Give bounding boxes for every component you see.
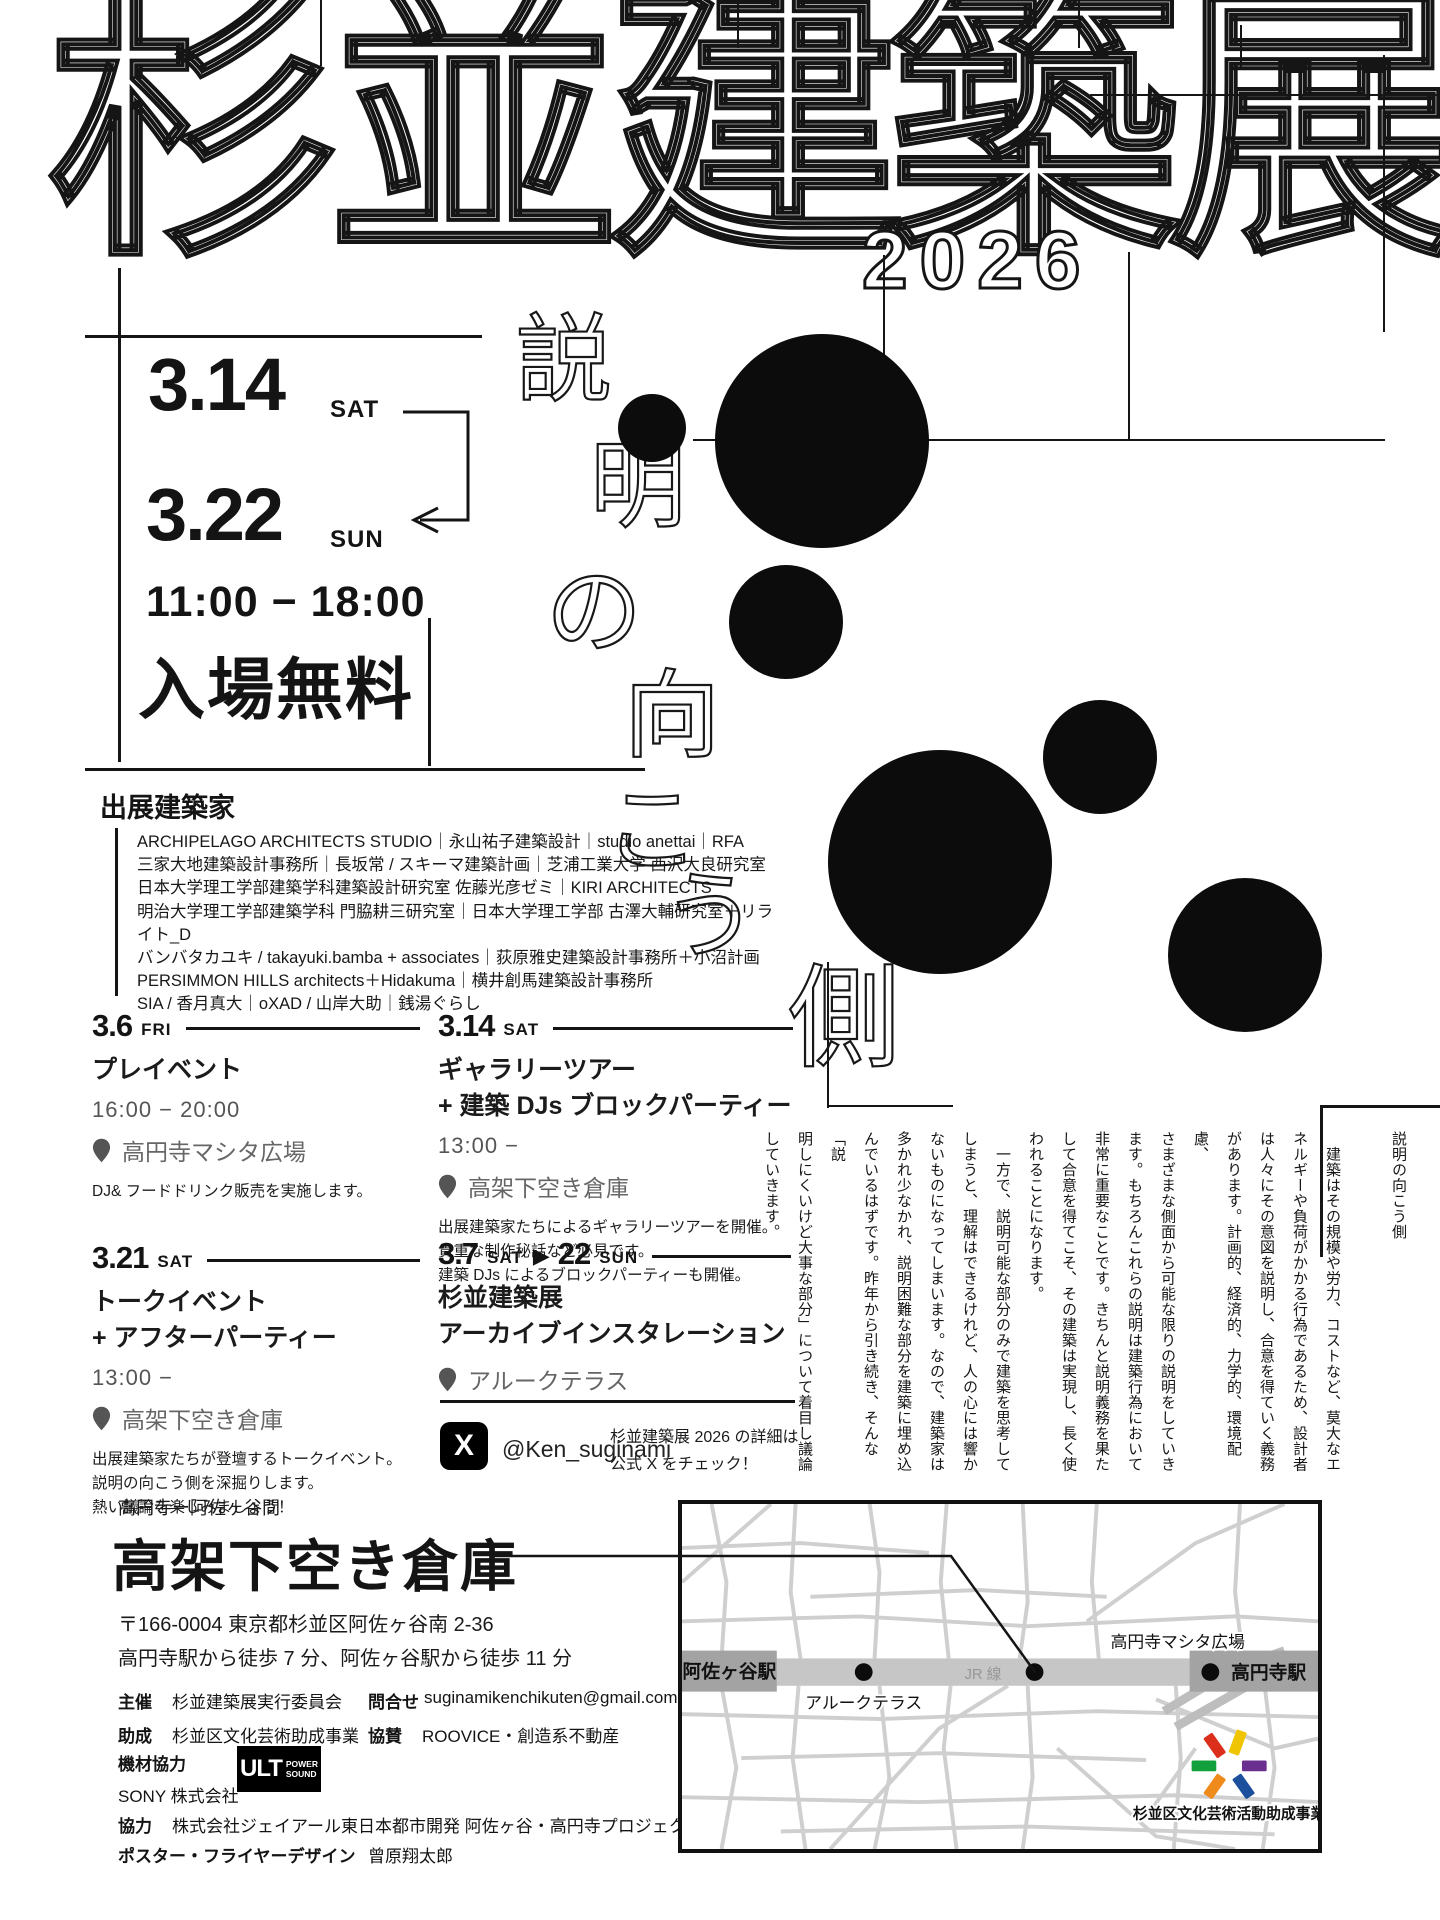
event-archive-installation: 3.7 SAT ▶ 22 SUN 杉並建築展 アーカイブインスタレーション アル… (438, 1236, 791, 1396)
event-title: プレイベント (92, 1052, 420, 1088)
start-day: SAT (330, 396, 379, 424)
venue-name: 高架下空き倉庫 (112, 1522, 518, 1603)
construction-line (118, 268, 121, 762)
event-date-row: 3.21 SAT (92, 1240, 420, 1276)
event-venue: 高架下空き倉庫 (92, 1401, 420, 1435)
date-range-arrow-icon: ▶ (533, 1243, 550, 1269)
event-day: FRI (141, 1020, 171, 1040)
black-circle (715, 334, 929, 548)
event-venue: 高円寺マシタ広場 (92, 1133, 420, 1167)
essay-vertical-text: 説明の向こう側 建築はその規模や労力、コストなど、莫大なエ ネルギーや負荷がかか… (840, 1131, 1415, 1475)
event-venue-label: 高架下空き倉庫 (122, 1401, 283, 1435)
venue-route: 高円寺ー阿佐ヶ谷間 (118, 1494, 280, 1520)
ult-logo-text: ULT (240, 1755, 282, 1783)
location-pin-icon (92, 1138, 111, 1163)
terrace-dot (855, 1663, 873, 1681)
construction-line (737, 0, 739, 48)
credit-cooperation: 株式会社ジェイアール東日本都市開発 阿佐ヶ谷・高円寺プロジェクト (172, 1812, 703, 1837)
construction-line (428, 618, 431, 766)
sns-divider-line (440, 1400, 795, 1403)
venue-address: 〒166-0004 東京都杉並区阿佐ヶ谷南 2-36 (118, 1608, 494, 1637)
credit-label-design: ポスター・フライヤーデザイン (118, 1847, 356, 1866)
construction-line (1128, 252, 1130, 440)
event-title: 杉並建築展 アーカイブインスタレーション (438, 1280, 791, 1352)
admission-free: 入場無料 (138, 636, 414, 733)
construction-line (1090, 94, 1440, 96)
plaza-label: 高円寺マシタ広場 (1111, 1633, 1246, 1652)
event-description: DJ& フードドリンク販売を実施します。 (92, 1180, 420, 1204)
event-venue: アルークテラス (438, 1362, 791, 1396)
event-date: 3.6 (92, 1008, 132, 1044)
construction-line (320, 0, 322, 66)
event-venue-label: アルークテラス (468, 1362, 628, 1396)
station-label-asagaya: 阿佐ヶ谷駅 (683, 1661, 777, 1682)
date-range-arrowhead (414, 508, 438, 532)
event-title: ギャラリーツアー + 建築 DJs ブロックパーティー (438, 1052, 793, 1124)
credit-label-grant: 助成 (118, 1727, 152, 1746)
architects-heading: 出展建築家 (100, 786, 235, 825)
location-pin-icon (438, 1174, 457, 1199)
black-circle (1043, 700, 1157, 814)
event-date: 3.7 (438, 1236, 478, 1272)
credit-organizer: 杉並建築展実行委員会 (172, 1688, 342, 1713)
credit-design: 曾原翔太郎 (368, 1842, 453, 1867)
construction-line (85, 335, 482, 338)
ult-logo-subtext: POWER SOUND (286, 1759, 318, 1779)
jr-line-label: JR 線 (964, 1666, 1001, 1683)
opening-hours: 11:00 − 18:00 (146, 578, 426, 627)
construction-line (1078, 0, 1080, 48)
event-pre-event: 3.6 FRI プレイベント 16:00 − 20:00 高円寺マシタ広場 DJ… (92, 1008, 420, 1204)
venue-access: 高円寺駅から徒歩 7 分、阿佐ヶ谷駅から徒歩 11 分 (118, 1642, 572, 1671)
event-talk-event: 3.21 SAT トークイベント + アフターパーティー 13:00 − 高架下… (92, 1240, 420, 1520)
construction-line (827, 962, 829, 1108)
ult-logo-line2: SOUND (286, 1769, 317, 1779)
construction-line (1240, 25, 1242, 67)
event-date-row: 3.7 SAT ▶ 22 SUN (438, 1236, 791, 1272)
credit-label-cooperation: 協力 (118, 1817, 152, 1836)
event-title: トークイベント + アフターパーティー (92, 1284, 420, 1356)
poster: 杉並建築展 2026 説明の向こう側 3.14 SAT 3.22 SUN 11:… (0, 0, 1440, 1920)
grant-logo-label: 杉並区文化芸術活動助成事業 (1133, 1805, 1318, 1823)
event-date-row: 3.14 SAT (438, 1008, 793, 1044)
event-time: 16:00 − 20:00 (92, 1097, 420, 1123)
event-date-row: 3.6 FRI (92, 1008, 420, 1044)
event-rule (652, 1255, 791, 1258)
event-venue-label: 高円寺マシタ広場 (122, 1133, 306, 1167)
location-pin-icon (438, 1367, 457, 1392)
ult-power-sound-logo: ULT POWER SOUND (237, 1746, 321, 1792)
start-date: 3.14 (148, 342, 284, 427)
black-circle (828, 750, 1052, 974)
warehouse-dot (1026, 1663, 1044, 1681)
x-logo-icon: X (440, 1422, 488, 1470)
date-range-arrow (403, 412, 468, 520)
event-rule (207, 1259, 420, 1262)
event-time: 13:00 − (92, 1365, 420, 1391)
location-pin-icon (92, 1406, 111, 1431)
credit-label-contact: 問合せ (368, 1693, 419, 1712)
access-map: JR 線 阿佐ヶ谷駅 高円寺駅 アルークテラス 高円寺マシタ広場 杉並区文化芸術… (678, 1500, 1322, 1853)
architects-list-bar (115, 828, 118, 996)
construction-line (827, 1105, 953, 1107)
end-date: 3.22 (146, 472, 282, 557)
event-day: SAT (503, 1020, 539, 1040)
exhibition-title-logo: 杉並建築展 (48, 0, 1440, 287)
credit-equipment-company: SONY 株式会社 (118, 1782, 239, 1807)
x-note: 杉並建築展 2026 の詳細は 公式 X をチェック！ (610, 1424, 799, 1478)
map-graphic: JR 線 阿佐ヶ谷駅 高円寺駅 アルークテラス 高円寺マシタ広場 杉並区文化芸術… (682, 1504, 1318, 1849)
credit-sponsor: ROOVICE・創造系不動産 (422, 1722, 619, 1747)
station-dot-koenji (1201, 1663, 1219, 1681)
black-circle (729, 565, 843, 679)
credit-label-equipment: 機材協力 (118, 1755, 186, 1774)
event-rule (553, 1027, 793, 1030)
credit-contact-email: suginamikenchikuten@gmail.com (424, 1688, 677, 1708)
event-day: SAT (157, 1252, 193, 1272)
construction-line (85, 768, 645, 771)
credit-label-sponsor: 協賛 (368, 1727, 402, 1746)
exhibition-year: 2026 (862, 214, 1092, 308)
station-label-koenji: 高円寺駅 (1231, 1662, 1306, 1683)
black-circle (1168, 878, 1322, 1032)
architects-list: ARCHIPELAGO ARCHITECTS STUDIO｜永山祐子建築設計｜s… (137, 831, 777, 1017)
terrace-label: アルークテラス (805, 1693, 922, 1712)
event-venue-label: 高架下空き倉庫 (468, 1169, 629, 1203)
event-date-end: 22 (558, 1236, 590, 1272)
credit-grant: 杉並区文化芸術助成事業 (172, 1722, 359, 1747)
event-day-end: SUN (599, 1248, 638, 1268)
event-rule (186, 1027, 421, 1030)
ult-logo-line1: POWER (286, 1759, 318, 1769)
credit-label-organizer: 主催 (118, 1693, 152, 1712)
event-venue: 高架下空き倉庫 (438, 1169, 793, 1203)
construction-line (1383, 55, 1385, 332)
event-date: 3.21 (92, 1240, 148, 1276)
event-date: 3.14 (438, 1008, 494, 1044)
black-circle (618, 394, 686, 462)
event-time: 13:00 − (438, 1133, 793, 1159)
event-day: SAT (487, 1248, 523, 1268)
essay-frame-line (1320, 1105, 1440, 1108)
end-day: SUN (330, 526, 384, 554)
